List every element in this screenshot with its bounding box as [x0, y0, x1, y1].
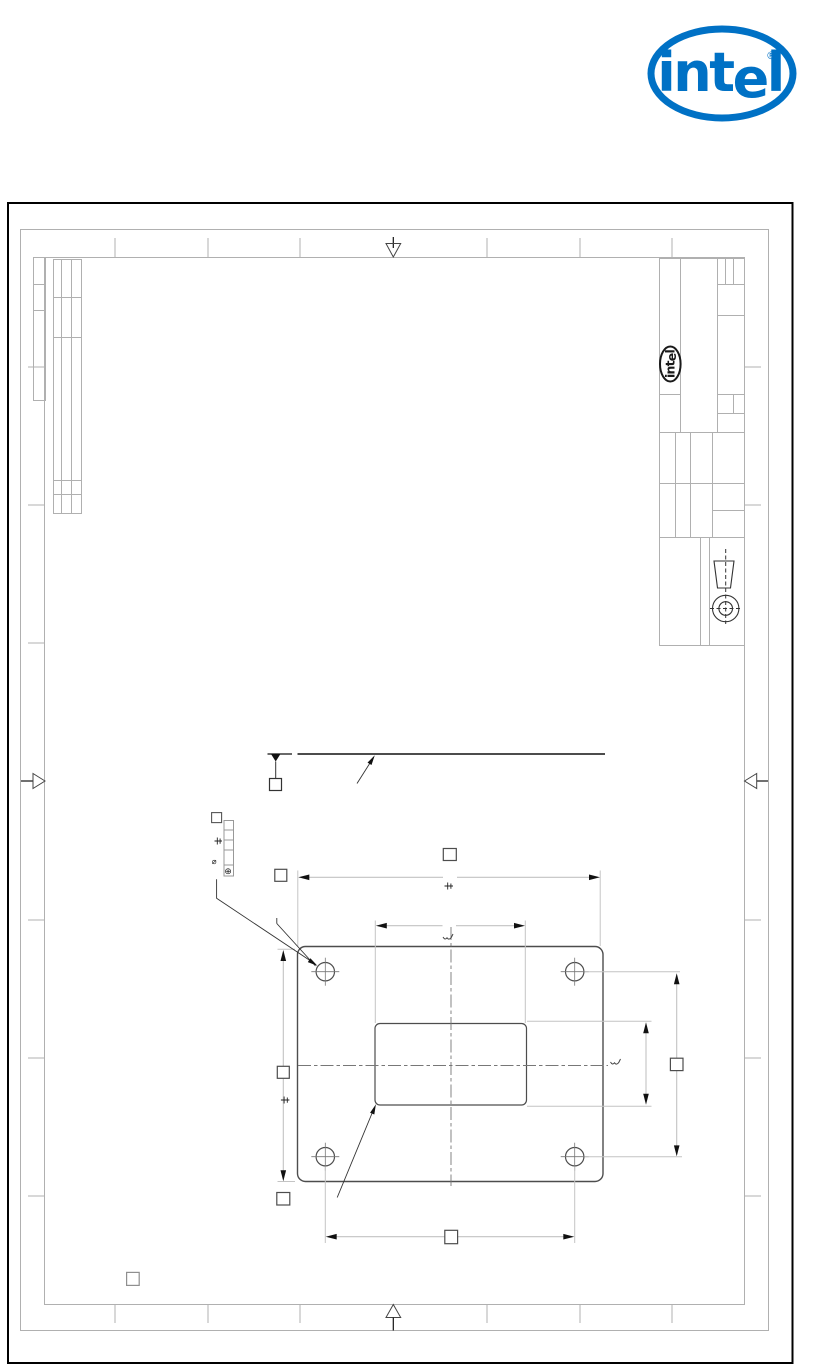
arrow-down — [674, 1145, 680, 1156]
hole-top-left — [311, 958, 339, 986]
plate-view — [298, 927, 609, 1186]
arrow-left — [376, 923, 387, 929]
projection-symbol-icon — [710, 549, 742, 624]
intel-logo: intel ® — [651, 29, 793, 118]
dimension-value-box — [670, 1058, 683, 1070]
intel-logo-text-small: intel — [663, 350, 680, 378]
feature-control-frame: ⌀ ⊕ — [212, 813, 318, 966]
dimension-hole-span-vertical — [670, 973, 683, 1156]
arrow-down — [281, 1170, 287, 1181]
arrow-right — [514, 923, 525, 929]
glyph-tolerance-mark — [445, 883, 454, 890]
dimension-note-box — [277, 1193, 290, 1206]
drawing-sheet: intel — [0, 0, 820, 1371]
cutout-leader — [337, 1104, 376, 1197]
diameter-symbol: ⌀ — [212, 857, 217, 866]
dimension-value-box — [443, 849, 456, 861]
title-block-grid — [660, 259, 745, 646]
fold-mark-left-icon — [21, 774, 45, 789]
zone-ticks — [28, 238, 761, 1323]
arrow-down — [643, 1094, 649, 1105]
frame-inner-gray — [45, 258, 745, 1305]
fcf-leader — [217, 879, 315, 963]
title-block-intel-logo: intel — [660, 347, 681, 382]
dimension-cutout-width — [376, 923, 525, 939]
dimension-cutout-height — [611, 1022, 649, 1105]
side-view-leader — [357, 755, 375, 783]
extension-lines — [278, 871, 683, 1244]
dimension-value-box — [445, 1230, 458, 1243]
position-symbol: ⊕ — [224, 867, 231, 877]
leader-arrowhead — [368, 755, 375, 765]
plate-outline — [298, 947, 604, 1182]
dimension-hole-span-horizontal — [326, 1230, 575, 1243]
datum-flag-icon — [268, 754, 293, 791]
quantity-box — [212, 813, 222, 823]
dimension-plate-height — [277, 950, 290, 1205]
revision-table — [34, 258, 82, 514]
dimension-plate-width — [275, 849, 600, 890]
arrow-up — [643, 1022, 649, 1033]
projection-cone — [714, 561, 734, 588]
arrow-right — [563, 1234, 574, 1240]
dimension-note-box — [275, 869, 287, 881]
intel-logo-text: intel — [657, 41, 782, 110]
glyph-tolerance-mark — [281, 1097, 290, 1104]
arrow-up — [674, 973, 680, 984]
arrow-left — [326, 1234, 337, 1240]
fold-mark-right-icon — [745, 774, 769, 789]
frame-outer-gray — [21, 230, 769, 1331]
arrow-right — [589, 875, 600, 881]
registered-mark: ® — [766, 50, 777, 62]
title-block: intel — [660, 259, 745, 646]
fold-mark-top-icon — [386, 237, 401, 257]
glyph-centerline-mark — [443, 934, 453, 939]
dimension-value-box — [277, 1066, 289, 1078]
fold-mark-bottom-icon — [386, 1305, 401, 1331]
glyph-tolerance-mark — [215, 838, 223, 845]
glyph-centerline-mark — [611, 1059, 621, 1064]
datum-label-box — [270, 779, 282, 791]
side-view — [268, 754, 606, 791]
leader-arrowhead — [370, 1104, 376, 1114]
arrow-left — [298, 875, 309, 881]
note-box-bottom-left — [127, 1272, 140, 1285]
arrow-up — [281, 950, 287, 961]
